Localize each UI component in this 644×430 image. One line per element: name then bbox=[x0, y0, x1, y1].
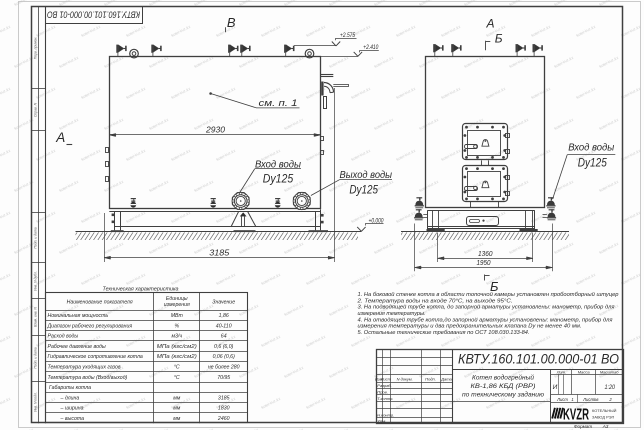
svg-text:Утв.: Утв. bbox=[377, 419, 386, 424]
svg-text:%: % bbox=[174, 323, 179, 329]
svg-text:Масштаб: Масштаб bbox=[600, 369, 619, 374]
svg-text:+2.410: +2.410 bbox=[363, 44, 378, 51]
svg-text:Б: Б bbox=[495, 32, 503, 46]
svg-text:Температура воды (Вход/выход): Температура воды (Вход/выход) bbox=[48, 375, 128, 381]
svg-text:1,86: 1,86 bbox=[219, 313, 229, 319]
svg-text:КВТУ.160.101.00.000-01 ВО: КВТУ.160.101.00.000-01 ВО bbox=[458, 352, 620, 367]
svg-text:Б: Б bbox=[490, 279, 499, 294]
svg-text:3185: 3185 bbox=[218, 395, 230, 401]
svg-text:КВТУ.160.101.00.000-01 ВО: КВТУ.160.101.00.000-01 ВО bbox=[47, 8, 140, 19]
svg-text:Лист: Лист bbox=[556, 397, 568, 402]
svg-text:Габариты котла: Габариты котла bbox=[49, 385, 91, 391]
svg-text:Номинальная мощность: Номинальная мощность bbox=[48, 313, 109, 319]
svg-text:Справ. N: Справ. N bbox=[34, 102, 38, 117]
svg-text:3. На подводящей трубе котла,: 3. На подводящей трубе котла, до запорно… bbox=[358, 304, 615, 311]
svg-text:1830: 1830 bbox=[218, 406, 230, 412]
svg-text:измерения температуры и два пр: измерения температуры и два предохраните… bbox=[358, 324, 582, 330]
svg-text:А: А bbox=[485, 17, 494, 31]
svg-text:+2.575: +2.575 bbox=[340, 32, 355, 39]
svg-text:Т.контр.: Т.контр. bbox=[377, 396, 393, 401]
svg-text:Температура уходящих газов: Температура уходящих газов bbox=[48, 364, 121, 370]
svg-text:Подп. и дата: Подп. и дата bbox=[34, 227, 38, 248]
svg-text:Гидравлическое сопротивление к: Гидравлическое сопротивление котла bbox=[48, 354, 143, 360]
svg-text:Рабочее давление воды: Рабочее давление воды bbox=[48, 344, 106, 350]
svg-text:Инв. N подл.: Инв. N подл. bbox=[34, 392, 38, 412]
svg-text:– высота: – высота bbox=[60, 416, 85, 422]
svg-text:Единицы: Единицы bbox=[166, 296, 188, 302]
svg-text:мм: мм bbox=[173, 406, 181, 412]
svg-text:1360: 1360 bbox=[478, 249, 493, 258]
svg-text:KVZR: KVZR bbox=[563, 406, 589, 423]
svg-text:N докум.: N докум. bbox=[397, 376, 413, 381]
svg-text:Диапазон рабочего регулировани: Диапазон рабочего регулирования bbox=[47, 323, 133, 329]
svg-text:КВ-1,86 КБД (РВР): КВ-1,86 КБД (РВР) bbox=[471, 383, 536, 390]
svg-text:0,06 (0,6): 0,06 (0,6) bbox=[213, 354, 235, 360]
svg-text:Разраб.: Разраб. bbox=[377, 383, 391, 388]
svg-text:°С: °С bbox=[174, 375, 180, 381]
svg-text:40-110: 40-110 bbox=[216, 323, 232, 329]
svg-text:1. На боковой стенке котла в о: 1. На боковой стенке котла в области топ… bbox=[358, 291, 619, 298]
svg-text:Лист: Лист bbox=[380, 376, 392, 381]
svg-text:°С: °С bbox=[174, 364, 180, 370]
svg-text:МВт: МВт bbox=[171, 313, 184, 319]
svg-text:Котел водогрейный: Котел водогрейный bbox=[472, 374, 534, 382]
svg-text:3185: 3185 bbox=[209, 247, 229, 257]
svg-text:Взам. инв. N: Взам. инв. N bbox=[34, 307, 38, 327]
svg-text:Dy125: Dy125 bbox=[578, 155, 607, 169]
svg-text:по техническому заданию: по техническому заданию bbox=[462, 390, 544, 398]
svg-text:м3/ч: м3/ч bbox=[171, 334, 182, 340]
svg-text:64: 64 bbox=[221, 334, 227, 340]
svg-text:Листов: Листов bbox=[582, 397, 599, 402]
svg-text:В: В bbox=[227, 15, 236, 30]
svg-text:4. На отводящей трубе котла,до: 4. На отводящей трубе котла,до запорной … bbox=[358, 316, 613, 323]
svg-text:А3: А3 bbox=[602, 424, 609, 429]
svg-text:измерения температуры.: измерения температуры. bbox=[358, 311, 426, 317]
svg-text:см. п. 1: см. п. 1 bbox=[259, 98, 298, 109]
svg-text:2. Температура воды на входе 7: 2. Температура воды на входе 70°С, на вы… bbox=[356, 298, 512, 304]
svg-text:+0.000: +0.000 bbox=[369, 217, 384, 224]
svg-text:2460: 2460 bbox=[217, 416, 230, 422]
svg-text:КОТЕЛЬНЫЙ: КОТЕЛЬНЫЙ bbox=[592, 408, 617, 413]
svg-text:– длина: – длина bbox=[60, 395, 80, 401]
svg-text:мм: мм bbox=[173, 416, 181, 422]
svg-text:МПа (кгс/см2): МПа (кгс/см2) bbox=[157, 354, 197, 360]
svg-text:2930: 2930 bbox=[205, 125, 225, 135]
svg-text:Наименование показателя: Наименование показателя bbox=[67, 299, 133, 305]
svg-text:Масса: Масса bbox=[578, 369, 591, 374]
svg-text:мм: мм bbox=[173, 395, 181, 401]
svg-text:Значение: Значение bbox=[212, 299, 235, 305]
svg-text:И: И bbox=[553, 384, 558, 391]
svg-text:1:20: 1:20 bbox=[605, 384, 616, 391]
svg-text:Dy125: Dy125 bbox=[349, 182, 378, 196]
svg-text:Пров.: Пров. bbox=[377, 390, 388, 395]
svg-text:Подп.: Подп. bbox=[425, 376, 436, 381]
svg-text:А: А bbox=[55, 130, 65, 145]
svg-text:0,6 (6,0): 0,6 (6,0) bbox=[214, 344, 234, 350]
svg-text:Н.контр.: Н.контр. bbox=[377, 412, 394, 417]
svg-text:Инв. N дубл.: Инв. N дубл. bbox=[34, 271, 38, 291]
svg-text:не более 280: не более 280 bbox=[208, 364, 240, 370]
svg-text:ЗАВОД РЭП: ЗАВОД РЭП bbox=[592, 415, 614, 420]
svg-text:Расход воды: Расход воды bbox=[48, 334, 79, 340]
svg-text:1: 1 bbox=[571, 397, 573, 402]
svg-text:МПа (кгс/см2): МПа (кгс/см2) bbox=[157, 344, 197, 350]
svg-text:Вход воды: Вход воды bbox=[568, 143, 615, 154]
svg-text:Перв. примен.: Перв. примен. bbox=[34, 37, 38, 60]
svg-text:Подп. и дата: Подп. и дата bbox=[34, 347, 38, 368]
svg-text:Dy125: Dy125 bbox=[263, 172, 294, 186]
svg-text:70/95: 70/95 bbox=[217, 375, 230, 381]
svg-text:Дата: Дата bbox=[440, 376, 452, 381]
svg-text:Формат: Формат bbox=[574, 424, 592, 429]
svg-text:измерения: измерения bbox=[164, 302, 190, 308]
svg-text:– ширина: – ширина bbox=[60, 406, 84, 412]
svg-text:Лит.: Лит. bbox=[556, 369, 566, 374]
svg-text:1950: 1950 bbox=[477, 258, 491, 267]
svg-text:Техническая характеристика: Техническая характеристика bbox=[103, 286, 179, 292]
svg-text:5. Остальные технические требо: 5. Остальные технические требования по О… bbox=[358, 330, 530, 336]
